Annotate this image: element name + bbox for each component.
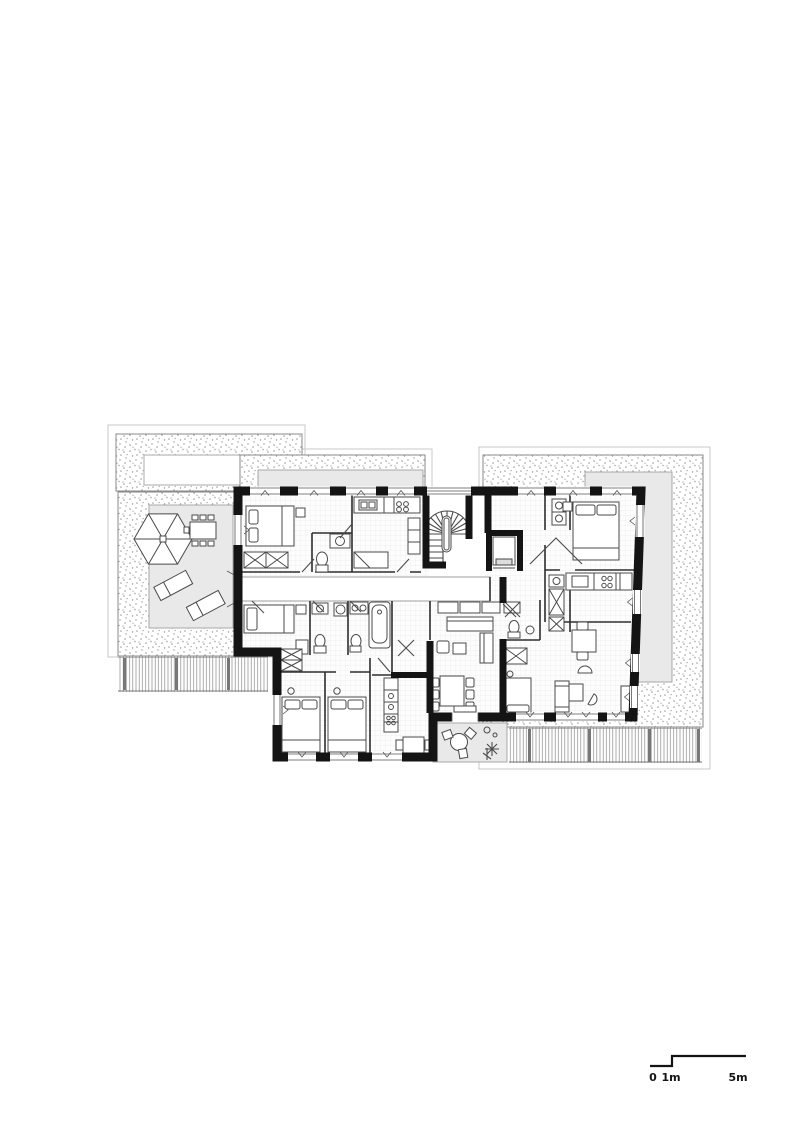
scale-label-5m: 5m [728,1071,747,1084]
window [556,487,590,496]
window [330,752,358,762]
railing-bottom-right [509,727,702,763]
window [607,712,625,722]
terrace-left-main [118,492,240,656]
stair-window-band [427,487,471,496]
scale-bar: 0 1m 5m [649,1056,747,1084]
elevator-icon [493,537,515,568]
door-threshold [454,706,476,712]
loggia-door-gap [452,713,478,722]
corridor-closets [438,602,520,613]
railing-left [118,656,268,692]
wardrobe-icon [281,649,302,671]
window [288,752,316,762]
armchair [437,641,449,653]
window [516,712,544,722]
loggia-terrace [433,723,507,762]
wardrobe-icon [505,648,527,664]
double-bed [573,502,619,560]
window [388,487,414,496]
loggia-chair [458,748,467,758]
sofa [447,617,493,631]
floor-plan-page: 0 1m 5m [0,0,800,1132]
coffee-table [453,643,466,654]
double-bed [328,688,366,752]
scale-bar-icon [650,1056,746,1066]
bathroom-column [549,575,564,631]
bed [244,605,294,633]
stair-newel [442,516,451,552]
square-table [572,630,596,652]
sofa [480,633,493,663]
window [250,487,280,496]
nightstand [296,605,306,614]
wardrobe-icon [244,552,288,568]
window [298,487,330,496]
window [372,752,402,762]
window [518,487,544,496]
scale-label-1m: 1m [661,1071,680,1084]
scale-label-zero: 0 [649,1071,657,1084]
sideboard [621,686,630,712]
kitchen [566,573,632,590]
double-bed [282,688,320,752]
corridor [238,577,490,601]
window [556,712,598,722]
window [602,487,632,496]
desk [569,684,583,701]
kitchen-table [403,737,424,753]
window [346,487,376,496]
nightstand [296,508,305,517]
floor-plan-canvas: 0 1m 5m [0,0,800,1132]
nightstand [563,502,572,511]
terrace-top-middle [240,455,425,492]
double-bed [246,506,294,546]
